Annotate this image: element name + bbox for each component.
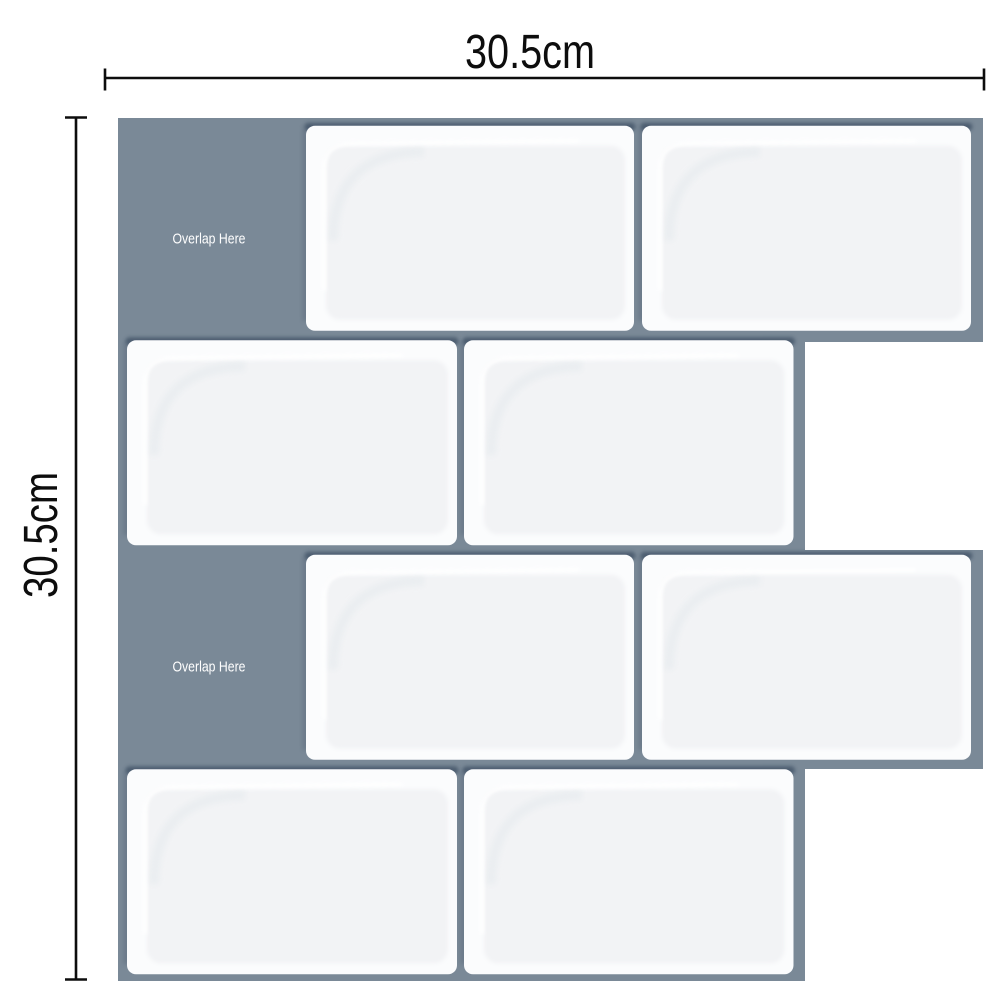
svg-text:30.5cm: 30.5cm bbox=[15, 472, 68, 598]
svg-text:Overlap Here: Overlap Here bbox=[173, 659, 246, 676]
svg-text:Overlap Here: Overlap Here bbox=[173, 231, 246, 248]
svg-text:30.5cm: 30.5cm bbox=[465, 26, 595, 79]
